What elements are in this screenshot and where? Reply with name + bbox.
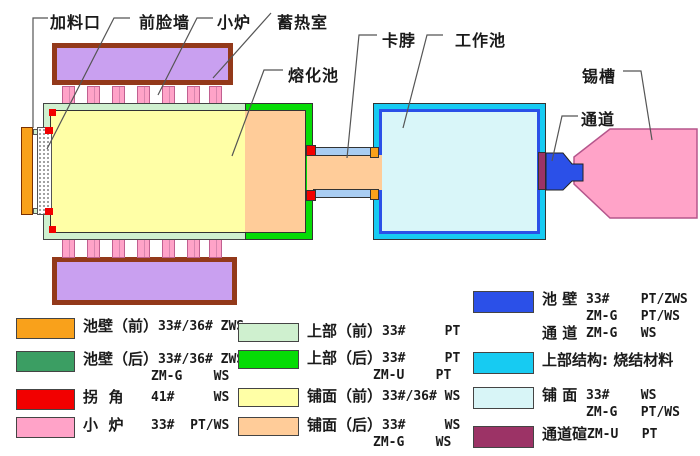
legend-cn: 池壁（后）: [83, 351, 158, 368]
legend-swatch: [238, 417, 299, 436]
neck-fill: [307, 155, 382, 190]
corner-block: [45, 208, 53, 215]
neck-corner-block: [370, 189, 379, 200]
port-bar: [112, 238, 125, 258]
tin-bath-shape: [574, 129, 697, 218]
port-bar: [87, 238, 100, 258]
legend-item-pool-wall-rear: 池壁（后）33#/36# ZWS ZM-G WS: [16, 351, 244, 385]
legend-cn: 通道碹: [542, 426, 587, 443]
port-bar: [209, 86, 222, 104]
bottom-regenerator: [52, 257, 237, 305]
legend-item-small-furnace: 小 炉33# PT/WS: [16, 417, 229, 438]
legend-swatch: [238, 323, 299, 342]
port-bar: [62, 86, 75, 104]
legend-spec: 41# WS: [151, 389, 229, 406]
legend-cn: 通 道: [542, 325, 586, 342]
legend-spec: 33# PT: [382, 350, 460, 367]
top-regenerator: [52, 43, 233, 85]
feed-wall-front: [21, 127, 33, 215]
neck-corner-block: [370, 147, 379, 158]
legend-item-corner: 拐 角41# WS: [16, 389, 229, 410]
channel-arch-strip: [538, 152, 546, 190]
legend-cn: [307, 434, 373, 451]
legend-cn: [542, 404, 586, 421]
corner-block: [45, 127, 53, 134]
port-bar: [62, 238, 75, 258]
port-bar: [162, 86, 175, 104]
channel-shape: [546, 153, 583, 190]
label-neck: 卡脖: [382, 27, 416, 51]
legend-spec: ZM-G PT/WS: [586, 308, 680, 325]
legend-cn: 池 壁: [542, 291, 586, 308]
legend-item-upper-structure: 上部结构: 烧结材料: [473, 352, 673, 374]
corner-block: [306, 190, 316, 201]
legend-item-paving: 铺 面33# WS ZM-G PT/WS: [473, 387, 680, 421]
legend-spec: ZM-G WS: [373, 434, 451, 451]
legend-cn: 小 炉: [83, 417, 151, 434]
label-channel: 通道: [581, 106, 615, 130]
legend-cn: [83, 368, 151, 385]
legend-spec: ZM-G PT/WS: [586, 404, 680, 421]
legend-spec: ZM-U PT: [373, 367, 451, 384]
neck-wall-bottom: [313, 189, 373, 198]
legend-cn: 上部（前）: [307, 323, 382, 340]
legend-swatch: [473, 426, 534, 448]
port-bar: [112, 86, 125, 104]
legend-item-paving-rear: 铺面（后）33# WS ZM-G WS: [238, 417, 460, 451]
port-bar: [209, 238, 222, 258]
corner-block: [49, 226, 56, 233]
legend-spec: 33# WS: [586, 387, 656, 404]
port-bar: [137, 238, 150, 258]
port-bar: [87, 86, 100, 104]
legend-item-pool-wall-front: 池壁（前）33#/36# ZWS: [16, 318, 244, 339]
legend-item-upper-rear: 上部（后）33# PT ZM-U PT: [238, 350, 460, 384]
legend-spec: 33#/36# ZWS: [158, 351, 244, 368]
neck-wall-top: [313, 147, 373, 156]
leader-channel: [552, 116, 578, 161]
legend-item-paving-front: 铺面（前）33#/36# WS: [238, 388, 460, 407]
legend-spec: 33#/36# ZWS: [158, 318, 244, 335]
legend-swatch: [473, 387, 534, 409]
label-small-furnace: 小炉: [217, 9, 251, 33]
legend-spec: ZM-U PT: [587, 426, 657, 443]
label-tin-bath: 锡槽: [582, 63, 616, 87]
port-bar: [187, 238, 200, 258]
legend-cn: 上部（后）: [307, 350, 382, 367]
legend-spec: ZM-G WS: [151, 368, 229, 385]
legend-spec: ZM-G WS: [586, 325, 656, 342]
legend-swatch: [16, 318, 75, 339]
legend-cn: 铺面（前）: [307, 388, 382, 405]
label-melting-pool: 熔化池: [288, 62, 339, 86]
feed-port-opening: [37, 127, 52, 215]
legend-spec: 33#/36# WS: [382, 388, 460, 405]
legend-swatch: [238, 350, 299, 369]
legend-cn: 铺 面: [542, 387, 586, 404]
furnace-diagram: 加料口 前脸墙 小炉 蓄热室 熔化池 卡脖 工作池 锡槽 通道 池壁（前）33#…: [0, 0, 700, 456]
leader-tin-bath: [623, 71, 652, 140]
legend-cn: 池壁（前）: [83, 318, 158, 335]
legend-swatch: [473, 352, 534, 374]
legend-swatch: [16, 389, 75, 410]
label-working-pool: 工作池: [455, 27, 506, 51]
legend-swatch: [16, 351, 75, 372]
legend-cn: [542, 308, 586, 325]
legend-item-pool-wall-channel: 池 壁33# PT/ZWS ZM-G PT/WS 通 道ZM-G WS: [473, 291, 688, 342]
legend-spec: 33# PT/ZWS: [586, 291, 688, 308]
legend-cn: 铺面（后）: [307, 417, 382, 434]
melting-pool-paving-rear: [245, 111, 305, 232]
legend-swatch: [16, 417, 75, 438]
legend-item-channel-arch: 通道碹ZM-U PT: [473, 426, 657, 448]
legend-cn: 拐 角: [83, 389, 151, 406]
label-front-face-wall: 前脸墙: [139, 9, 190, 33]
legend-cn: 上部结构: 烧结材料: [542, 352, 673, 369]
legend-spec: 33# PT: [382, 323, 460, 340]
port-bar: [187, 86, 200, 104]
legend-swatch: [473, 291, 534, 313]
corner-block: [306, 145, 316, 156]
legend-spec: 33# WS: [382, 417, 460, 434]
legend-spec: 33# PT/WS: [151, 417, 229, 434]
label-feed-port: 加料口: [50, 9, 101, 33]
label-regenerator: 蓄热室: [277, 9, 328, 33]
working-pool-fill: [382, 112, 537, 231]
corner-block: [49, 109, 56, 116]
legend-item-upper-front: 上部（前）33# PT: [238, 323, 460, 342]
legend-cn: [307, 367, 373, 384]
port-bar: [162, 238, 175, 258]
port-bar: [137, 86, 150, 104]
legend-swatch: [238, 388, 299, 407]
